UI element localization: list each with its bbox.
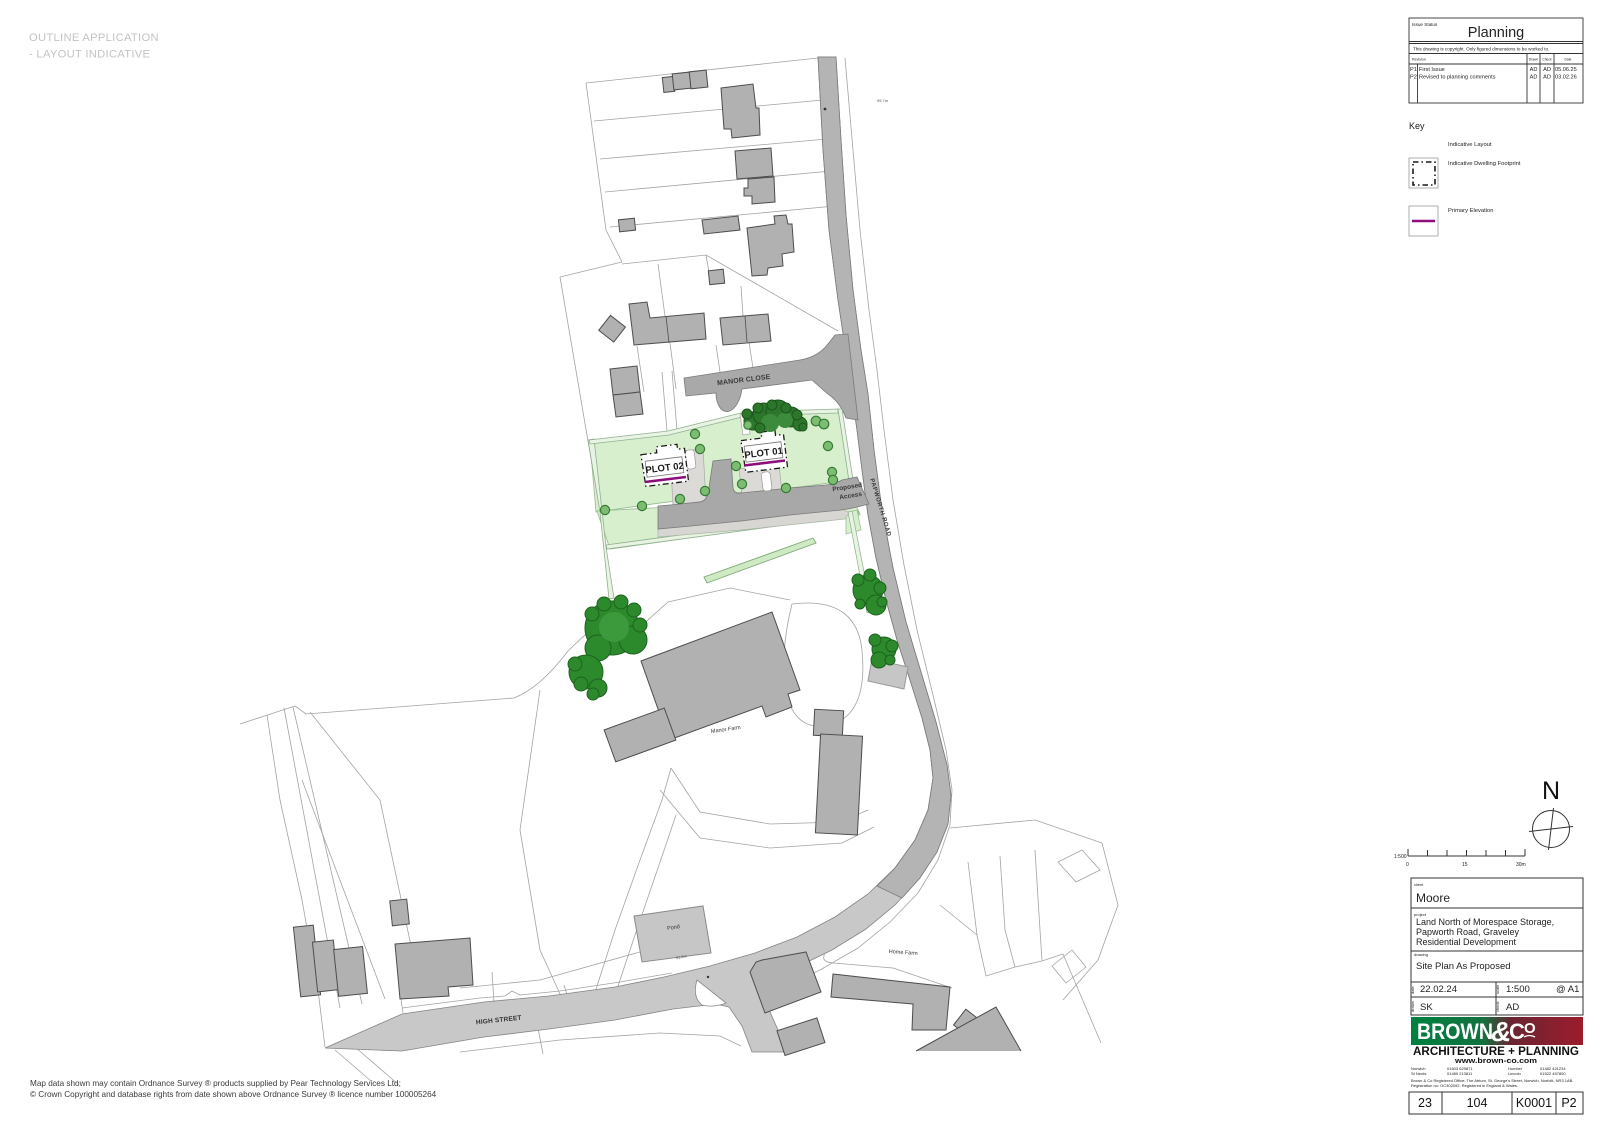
svg-text:0: 0 — [1406, 862, 1409, 868]
svg-text:Lincoln: Lincoln — [1508, 1071, 1521, 1076]
svg-text:O: O — [1524, 1020, 1536, 1037]
svg-text:Papworth Road, Graveley: Papworth Road, Graveley — [1416, 927, 1520, 937]
svg-text:23: 23 — [1418, 1096, 1432, 1110]
svg-text:drawn: drawn — [1410, 1001, 1415, 1012]
svg-text:scale: scale — [1495, 984, 1500, 994]
svg-text:01480 213811: 01480 213811 — [1447, 1071, 1473, 1076]
svg-text:Issue Status: Issue Status — [1412, 22, 1438, 27]
svg-text:- LAYOUT INDICATIVE: - LAYOUT INDICATIVE — [29, 49, 150, 61]
svg-text:SK: SK — [1420, 1002, 1433, 1013]
svg-text:Land North of Morespace Storag: Land North of Morespace Storage, — [1416, 917, 1554, 927]
svg-text:Registration no: OC302092. Re: Registration no: OC302092. Registered in… — [1411, 1083, 1518, 1088]
svg-text:© Crown Copyright and database: © Crown Copyright and database rights fr… — [30, 1090, 437, 1099]
svg-text:K0001: K0001 — [1516, 1096, 1552, 1110]
svg-text:01522 457800: 01522 457800 — [1540, 1071, 1566, 1076]
svg-text:Drawn: Drawn — [1529, 58, 1539, 62]
svg-text:Indicative Dwelling Footprint: Indicative Dwelling Footprint — [1448, 161, 1521, 167]
svg-text:AD: AD — [1506, 1002, 1519, 1013]
svg-text:This drawing is copyright. On: This drawing is copyright. Only figured … — [1413, 47, 1549, 52]
svg-text:Planning: Planning — [1468, 25, 1524, 41]
svg-text:30m: 30m — [1516, 862, 1526, 868]
svg-text:Site Plan As Proposed: Site Plan As Proposed — [1416, 961, 1511, 972]
svg-text:drawing: drawing — [1414, 952, 1428, 957]
svg-text:Revision: Revision — [1412, 58, 1426, 62]
svg-text:Date: Date — [1565, 58, 1572, 62]
svg-text:95.7m: 95.7m — [877, 98, 889, 103]
svg-text:check: check — [1495, 1002, 1500, 1012]
svg-text:03.02.26: 03.02.26 — [1555, 75, 1577, 81]
svg-text:www.brown-co.com: www.brown-co.com — [1454, 1056, 1538, 1065]
svg-text:St Neots: St Neots — [1411, 1071, 1426, 1076]
svg-text:client: client — [1414, 882, 1424, 887]
svg-text:OUTLINE APPLICATION: OUTLINE APPLICATION — [29, 32, 159, 44]
svg-text:Primary Elevation: Primary Elevation — [1448, 208, 1493, 214]
svg-text:@ A1: @ A1 — [1556, 984, 1579, 995]
svg-text:Residential Development: Residential Development — [1416, 937, 1517, 947]
svg-text:P2: P2 — [1410, 75, 1417, 81]
svg-text:Check: Check — [1542, 58, 1552, 62]
svg-text:1:500: 1:500 — [1394, 854, 1407, 860]
svg-text:Map data shown may contain Ord: Map data shown may contain Ordnance Surv… — [30, 1079, 401, 1088]
svg-text:AD: AD — [1543, 67, 1551, 73]
svg-text:22.02.24: 22.02.24 — [1420, 984, 1457, 995]
svg-text:Moore: Moore — [1416, 891, 1450, 905]
svg-text:N: N — [1542, 777, 1560, 805]
svg-text:P1: P1 — [1410, 67, 1417, 73]
svg-text:AD: AD — [1530, 67, 1538, 73]
svg-text:AD: AD — [1543, 75, 1551, 81]
svg-text:Revised to planning comments: Revised to planning comments — [1419, 75, 1496, 81]
svg-text:05.06.25: 05.06.25 — [1555, 67, 1577, 73]
svg-text:P2: P2 — [1561, 1096, 1576, 1110]
svg-text:date: date — [1410, 985, 1415, 994]
svg-text:BROWN: BROWN — [1417, 1019, 1493, 1044]
svg-text:AD: AD — [1530, 75, 1538, 81]
svg-text:Key: Key — [1409, 121, 1425, 131]
svg-text:C: C — [1509, 1019, 1525, 1044]
svg-text:15: 15 — [1462, 862, 1468, 868]
svg-text:104: 104 — [1467, 1096, 1488, 1110]
svg-text:1:500: 1:500 — [1506, 984, 1530, 995]
svg-text:Indicative Layout: Indicative Layout — [1448, 142, 1492, 148]
svg-text:First Issue: First Issue — [1419, 67, 1445, 73]
